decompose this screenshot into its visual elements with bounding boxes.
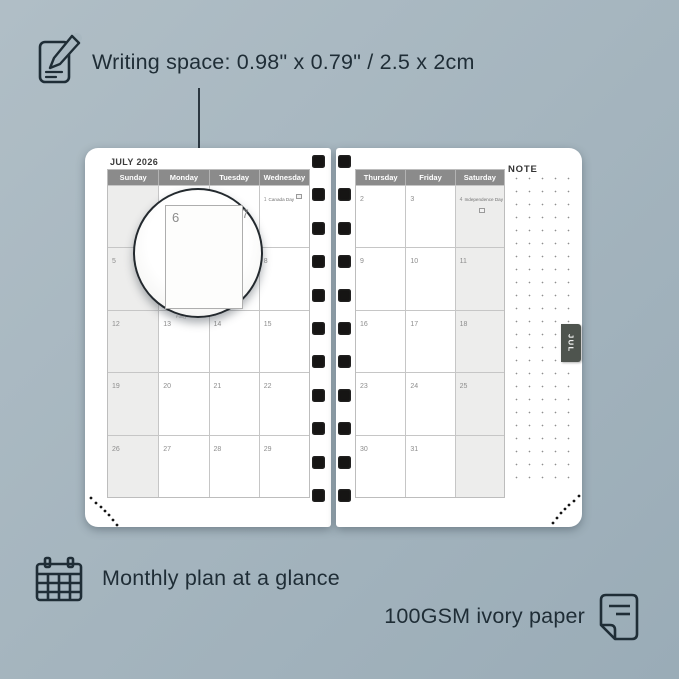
month-index-tab: JUL <box>561 324 581 362</box>
calendar-day-cell: 27 <box>158 435 208 497</box>
holiday-label: Canada Day <box>269 197 295 202</box>
day-number: 20 <box>163 383 171 390</box>
binding-hole <box>338 222 351 235</box>
calendar-day-cell: 31 <box>405 435 454 497</box>
binding-hole <box>312 155 325 168</box>
binding-hole <box>338 255 351 268</box>
monthly-plan-caption: Monthly plan at a glance <box>102 566 340 591</box>
writing-pad-pencil-icon <box>34 32 86 88</box>
calendar-icon <box>34 556 84 604</box>
binding-hole <box>338 155 351 168</box>
paper-caption: 100GSM ivory paper <box>350 604 585 629</box>
magnifier-circle: 6 7 <box>133 188 263 318</box>
day-number: 8 <box>264 258 268 265</box>
calendar-day-cell: 24 <box>405 372 454 434</box>
binding-hole <box>312 255 325 268</box>
day-number: 31 <box>410 446 418 453</box>
binding-hole <box>338 456 351 469</box>
calendar-grid-right: ThursdayFridaySaturday234Independence Da… <box>355 169 505 498</box>
month-title: JULY 2026 <box>110 157 158 167</box>
day-number: 1 <box>264 197 267 203</box>
holiday-label: Independence Day <box>464 197 503 202</box>
binding-hole <box>312 489 325 502</box>
binding-hole <box>312 322 325 335</box>
spiral-binding-left-holes <box>312 155 325 502</box>
day-number: 16 <box>360 321 368 328</box>
calendar-day-cell: 11 <box>455 247 504 309</box>
day-number: 18 <box>460 321 468 328</box>
day-number: 13 <box>163 321 171 328</box>
day-number: 28 <box>214 446 222 453</box>
day-header: Sunday <box>108 170 158 185</box>
day-header: Friday <box>405 170 454 185</box>
day-number: 21 <box>214 383 222 390</box>
calendar-day-cell: 17 <box>405 310 454 372</box>
day-number: 19 <box>112 383 120 390</box>
binding-hole <box>312 355 325 368</box>
binding-hole <box>338 289 351 302</box>
binding-hole <box>312 389 325 402</box>
calendar-day-cell: 20 <box>158 372 208 434</box>
binding-hole <box>338 422 351 435</box>
calendar-day-cell: 2 <box>356 185 405 247</box>
holiday-flag-icon <box>296 194 302 199</box>
binding-hole <box>312 188 325 201</box>
day-number: 29 <box>264 446 272 453</box>
day-header: Saturday <box>455 170 504 185</box>
calendar-day-cell: 1Canada Day <box>259 185 309 247</box>
calendar-day-cell: 23 <box>356 372 405 434</box>
binding-hole <box>338 188 351 201</box>
day-number: 5 <box>112 258 116 265</box>
magnified-day-number: 6 <box>172 210 179 225</box>
day-number: 9 <box>360 258 364 265</box>
day-number: 25 <box>460 383 468 390</box>
holiday-flag-icon <box>479 208 485 213</box>
calendar-day-cell: 21 <box>209 372 259 434</box>
calendar-day-cell: 26 <box>108 435 158 497</box>
day-number: 24 <box>410 383 418 390</box>
calendar-day-cell: 29 <box>259 435 309 497</box>
day-number: 27 <box>163 446 171 453</box>
calendar-day-cell: 28 <box>209 435 259 497</box>
month-tab-label: JUL <box>567 334 576 353</box>
day-header: Tuesday <box>209 170 259 185</box>
paper-sheet-icon <box>597 592 641 644</box>
day-number: 4 <box>460 197 463 203</box>
binding-hole <box>338 355 351 368</box>
writing-space-caption: Writing space: 0.98" x 0.79" / 2.5 x 2cm <box>92 50 475 75</box>
calendar-day-cell: 25 <box>455 372 504 434</box>
day-number: 12 <box>112 321 120 328</box>
calendar-day-cell: 10 <box>405 247 454 309</box>
binding-hole <box>312 422 325 435</box>
binding-hole <box>312 289 325 302</box>
calendar-day-cell: 18 <box>455 310 504 372</box>
perforation-dots <box>85 492 127 534</box>
day-number: 2 <box>360 196 364 203</box>
perforation-dots <box>543 490 585 532</box>
day-header: Monday <box>158 170 208 185</box>
day-number: 17 <box>410 321 418 328</box>
day-number: 26 <box>112 446 120 453</box>
note-label: NOTE <box>508 164 538 175</box>
calendar-day-cell: 15 <box>259 310 309 372</box>
day-header: Thursday <box>356 170 405 185</box>
binding-hole <box>338 489 351 502</box>
binding-hole <box>312 456 325 469</box>
calendar-day-cell: 16 <box>356 310 405 372</box>
magnified-adjacent-day-number: 7 <box>242 207 249 221</box>
binding-hole <box>338 389 351 402</box>
calendar-day-cell: 30 <box>356 435 405 497</box>
day-number: 22 <box>264 383 272 390</box>
day-number: 10 <box>410 258 418 265</box>
planner-right-page: ThursdayFridaySaturday234Independence Da… <box>336 148 582 527</box>
day-number: 11 <box>460 258 467 265</box>
spiral-binding-right-holes <box>338 155 351 502</box>
binding-hole <box>338 322 351 335</box>
calendar-day-cell: 19 <box>108 372 158 434</box>
day-header: Wednesday <box>259 170 309 185</box>
calendar-day-cell: 8 <box>259 247 309 309</box>
binding-hole <box>312 222 325 235</box>
calendar-day-cell <box>455 435 504 497</box>
calendar-day-cell: 22 <box>259 372 309 434</box>
calendar-day-cell: 12 <box>108 310 158 372</box>
calendar-day-cell: 13 <box>158 310 208 372</box>
product-image: Writing space: 0.98" x 0.79" / 2.5 x 2cm… <box>0 0 679 679</box>
calendar-day-cell: 9 <box>356 247 405 309</box>
day-number: 30 <box>360 446 368 453</box>
calendar-day-cell: 3 <box>405 185 454 247</box>
day-number: 15 <box>264 321 272 328</box>
day-number: 14 <box>214 321 222 328</box>
day-number: 3 <box>410 196 414 203</box>
calendar-day-cell: 14 <box>209 310 259 372</box>
calendar-day-cell: 4Independence Day <box>455 185 504 247</box>
day-number: 23 <box>360 383 368 390</box>
